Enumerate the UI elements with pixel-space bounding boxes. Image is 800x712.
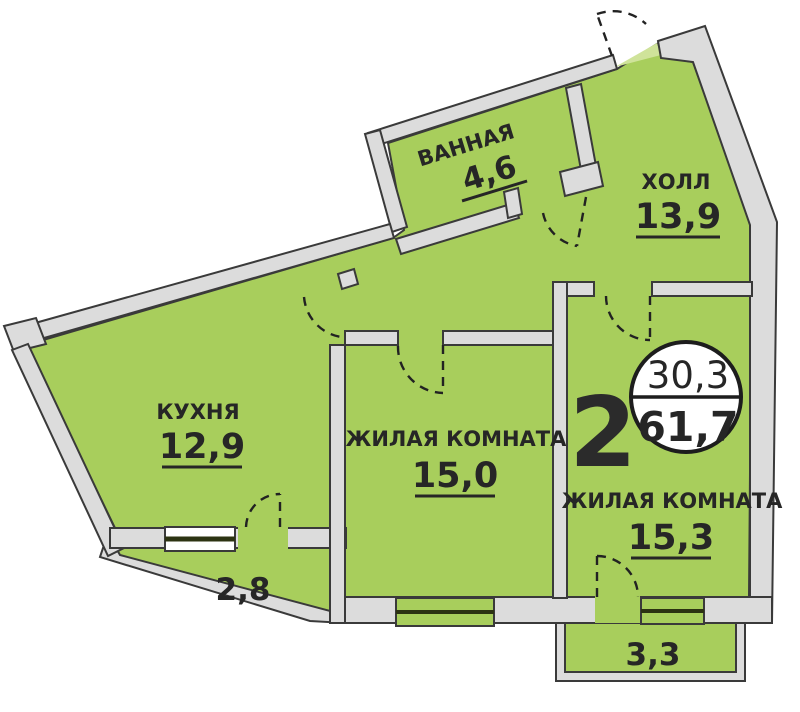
balcony-33-area: 3,3 xyxy=(626,637,681,673)
room150-top-wall-left xyxy=(345,331,398,345)
bathroom-bottom-wall-stub xyxy=(504,188,522,218)
area-badge-top: 30,3 xyxy=(647,354,729,397)
kitchen-area: 12,9 xyxy=(159,427,245,467)
room150-top-wall-right xyxy=(443,331,553,345)
entrance-door-arc xyxy=(597,11,646,24)
room-label-hall: ХОЛЛ 13,9 xyxy=(635,170,721,237)
floor-plan-page: ВАННАЯ 4,6 ХОЛЛ 13,9 КУХНЯ 12,9 ЖИЛАЯ КО… xyxy=(0,0,800,712)
living2-name: ЖИЛАЯ КОМНАТА xyxy=(562,489,784,513)
room150-left-wall xyxy=(330,345,345,623)
area-badge-bottom: 61,7 xyxy=(637,403,738,451)
kitchen-name: КУХНЯ xyxy=(156,400,239,424)
hall-area: 13,9 xyxy=(635,197,721,237)
hall-name: ХОЛЛ xyxy=(642,170,711,194)
floor-plan: ВАННАЯ 4,6 ХОЛЛ 13,9 КУХНЯ 12,9 ЖИЛАЯ КО… xyxy=(0,0,800,712)
room-label-kitchen: КУХНЯ 12,9 xyxy=(156,400,245,467)
living2-area: 15,3 xyxy=(628,518,714,558)
entrance-door-leaf xyxy=(597,14,612,56)
hall-bottom-wall-right xyxy=(652,282,752,296)
balcony-28-area: 2,8 xyxy=(216,572,271,608)
hall-bottom-wall-left xyxy=(567,282,594,296)
living1-area: 15,0 xyxy=(412,456,498,496)
room153-balcony-door-gap xyxy=(595,595,640,623)
kitchen-balcony-door-gap xyxy=(238,526,288,550)
living1-name: ЖИЛАЯ КОМНАТА xyxy=(346,427,568,451)
apartment-number: 2 xyxy=(569,376,637,489)
